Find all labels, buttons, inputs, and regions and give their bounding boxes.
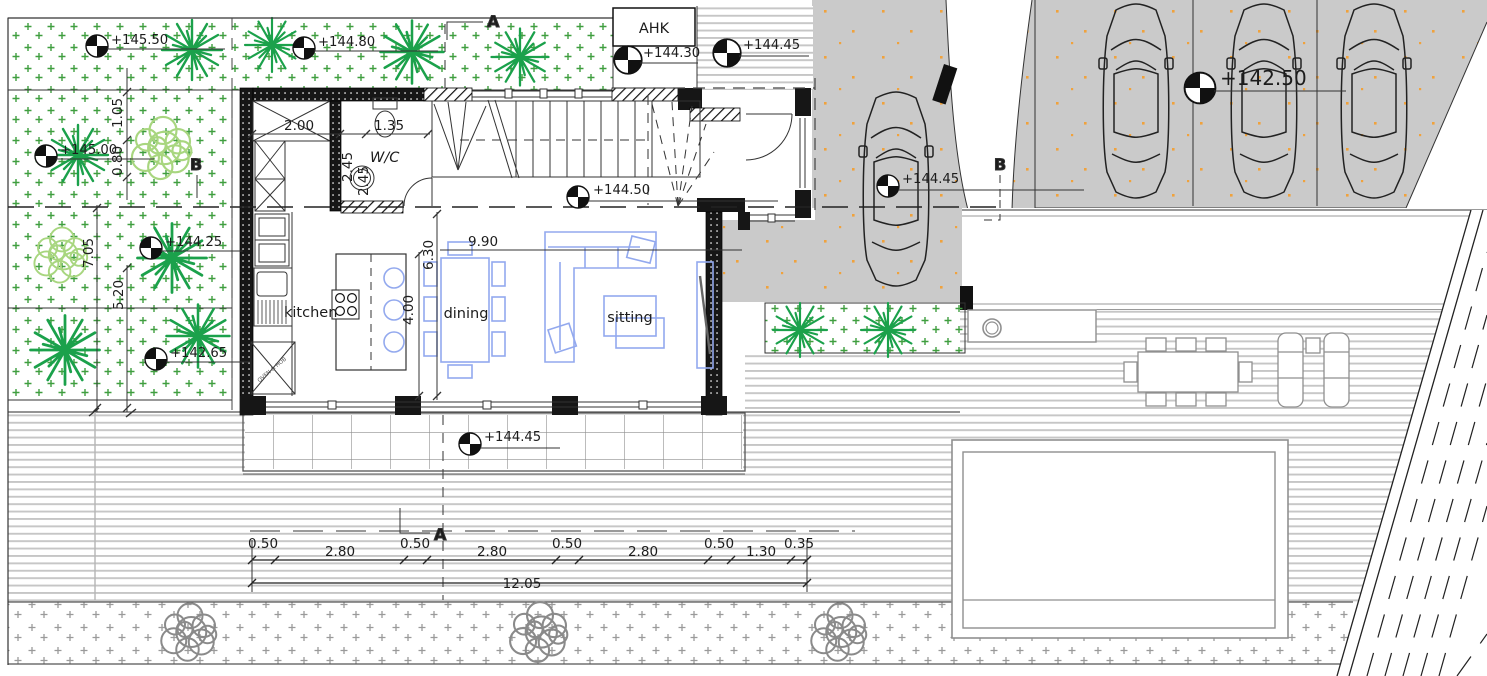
dim-chain-5: 2.80 (628, 544, 658, 560)
svg-text:+144.25: +144.25 (165, 235, 222, 250)
level-entry-path: +144.30 (614, 46, 700, 74)
dim-chain-8: 0.35 (784, 536, 814, 552)
dim-wc-width: 1.35 (374, 118, 404, 134)
dim-wc-depth: 2.45 (356, 166, 372, 196)
section-a-bottom: A (434, 525, 447, 544)
svg-text:+144.45: +144.45 (484, 430, 541, 445)
dim-chain-3: 2.80 (477, 544, 507, 560)
svg-text:+144.45: +144.45 (902, 172, 959, 187)
dim-garden-length: 7.05 (81, 238, 97, 268)
dim-chain-7: 1.30 (746, 544, 776, 560)
svg-text:+145.50: +145.50 (111, 33, 168, 48)
dim-offset-b: 0.80 (110, 146, 126, 176)
dim-chain-1: 2.80 (325, 544, 355, 560)
dim-living-width: 9.90 (468, 234, 498, 250)
dim-living-half: 4.00 (401, 295, 417, 325)
dim-offset-a: 1.05 (110, 98, 126, 128)
dim-chain-0: 0.50 (248, 536, 278, 552)
dim-garden-width: 5.20 (111, 280, 127, 310)
dim-chain-6: 0.50 (704, 536, 734, 552)
kitchen-island (332, 254, 406, 370)
dim-chain-4: 0.50 (552, 536, 582, 552)
pool (952, 440, 1288, 638)
floor-plan-drawing: OVEN & HOB (0, 0, 1487, 676)
svg-text:+145.00: +145.00 (60, 143, 117, 158)
svg-text:+142.50: +142.50 (1220, 66, 1307, 90)
section-a-top: A (487, 12, 500, 31)
kitchen-label: kitchen (284, 305, 337, 321)
sidewalk (960, 208, 1487, 312)
dining-label: dining (444, 306, 489, 322)
svg-text:+142.65: +142.65 (170, 346, 227, 361)
section-b-right: B (994, 155, 1006, 174)
ahk-box: AHK (613, 8, 695, 46)
svg-text:+144.80: +144.80 (318, 35, 375, 50)
svg-text:+144.30: +144.30 (643, 46, 700, 61)
floor-plan-canvas: OVEN & HOB (0, 0, 1487, 676)
outdoor-bench (968, 310, 1096, 342)
sitting-label: sitting (607, 310, 652, 326)
dim-storage-width: 2.00 (284, 118, 314, 134)
dim-storage-depth: 2.45 (340, 152, 356, 182)
ahk-label: AHK (639, 21, 670, 37)
wc-label: W/C (370, 150, 400, 166)
dim-chain-total: 12.05 (503, 576, 542, 592)
svg-text:+144.50: +144.50 (593, 183, 650, 198)
svg-text:+144.45: +144.45 (743, 38, 800, 53)
dim-chain-2: 0.50 (400, 536, 430, 552)
section-b-left: B (190, 155, 202, 174)
dim-living-depth: 6.30 (421, 240, 437, 270)
